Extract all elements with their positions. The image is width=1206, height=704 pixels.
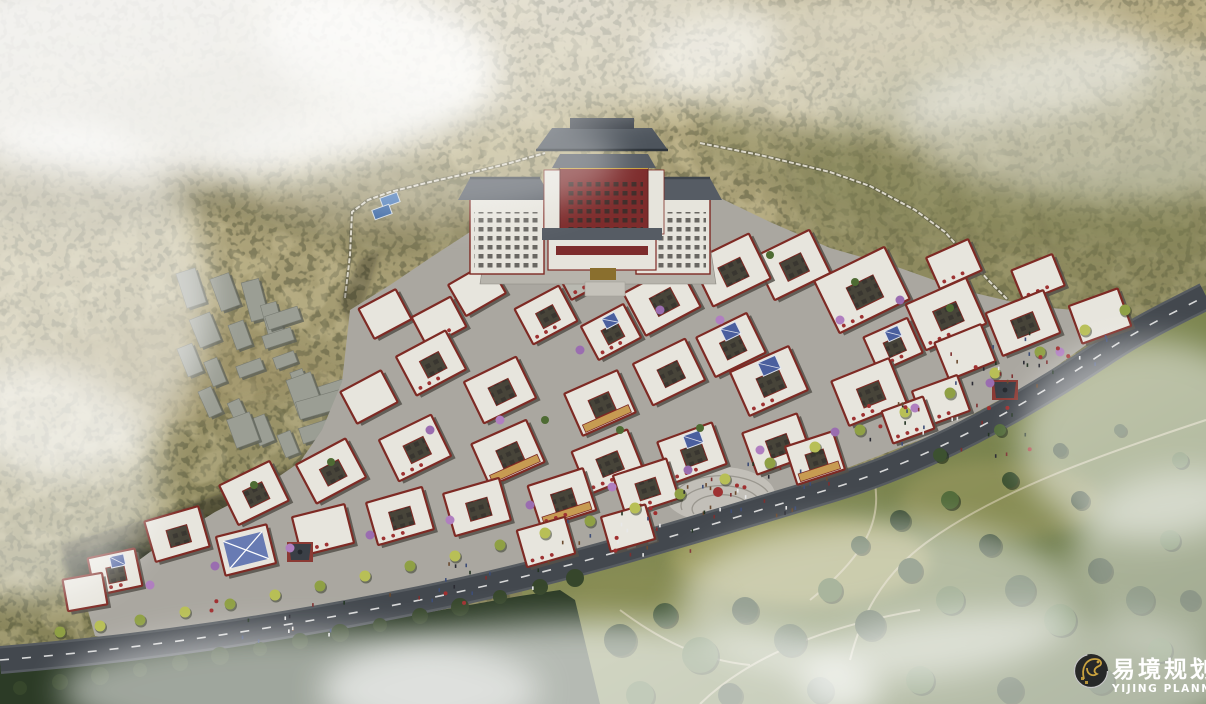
logo-emblem-icon (1074, 654, 1108, 688)
logo-text-cn: 易境规划 (1112, 656, 1206, 683)
logo-text-en: YIJING PLANNING (1111, 683, 1206, 695)
rendering-canvas: 易境规划 YIJING PLANNING (0, 0, 1206, 704)
